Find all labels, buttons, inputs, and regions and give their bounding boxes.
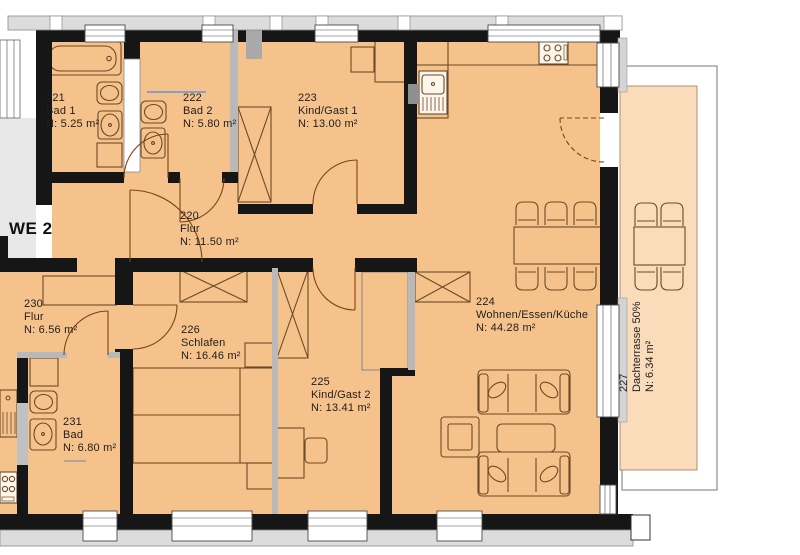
room-number: 225 [311,376,371,389]
room-label-224: 224 Wohnen/Essen/Küche N: 44.28 m² [476,296,588,335]
floor-plan: WE 2 221 Bad 1 N: 5.25 m² 222 Bad 2 N: 5… [0,0,800,555]
room-number: 230 [24,298,77,311]
room-name: Wohnen/Essen/Küche [476,309,588,322]
room-label-230: 230 Flur N: 6.56 m² [24,298,77,337]
room-number: 231 [63,416,116,429]
room-label-226: 226 Schlafen N: 16.46 m² [181,324,241,363]
room-label-220: 220 Flur N: 11.50 m² [180,210,239,249]
room-name: Flur [180,223,239,236]
room-area: N: 5.80 m² [183,118,236,131]
window-right-1 [597,43,619,87]
room-label-225: 225 Kind/Gast 2 N: 13.41 m² [311,376,371,415]
room-number: 220 [180,210,239,223]
window-top-2 [202,25,233,42]
room-name: Flur [24,311,77,324]
room-area: N: 6.34 m² [644,272,657,392]
room-number: 222 [183,92,236,105]
window-top-3 [315,25,358,42]
room-number: 226 [181,324,241,337]
room-name: Kind/Gast 2 [311,389,371,402]
window-top-1 [85,25,125,42]
duct-shaft [124,59,140,172]
window-bottom-4 [437,511,482,541]
unit-label: WE 2 [9,219,53,239]
room-name: Bad 1 [46,105,99,118]
room-label-222: 222 Bad 2 N: 5.80 m² [183,92,236,131]
room-area: N: 5.25 m² [46,118,99,131]
kitchen-duct [408,84,419,104]
room-area: N: 44.28 m² [476,322,588,335]
room-label-221: 221 Bad 1 N: 5.25 m² [46,92,99,131]
room-area: N: 13.41 m² [311,402,371,415]
room-area: N: 13.00 m² [298,118,358,131]
room-number: 224 [476,296,588,309]
room-number: 223 [298,92,358,105]
room-label-227: 227 Dachterrasse 50% N: 6.34 m² [618,272,678,392]
window-top-kitchen [488,25,600,42]
room-name: Dachterrasse 50% [631,272,644,392]
terrace-pillar [631,515,650,540]
window-left [0,40,20,118]
window-bottom-1 [83,511,117,541]
room-area: N: 11.50 m² [180,236,239,249]
room-area: N: 16.46 m² [181,350,241,363]
floor-plan-graphics [0,0,800,555]
window-bottom-3 [308,511,367,541]
room-name: Schlafen [181,337,241,350]
room-name: Kind/Gast 1 [298,105,358,118]
exterior-wall-right [600,29,618,517]
terrace-door-opening [600,113,618,167]
room-area: N: 6.56 m² [24,324,77,337]
room-number: 227 [618,272,631,392]
room-area: N: 6.80 m² [63,442,116,455]
room-name: Bad [63,429,116,442]
window-right-2 [597,305,619,417]
room-name: Bad 2 [183,105,236,118]
room-label-223: 223 Kind/Gast 1 N: 13.00 m² [298,92,358,131]
window-bottom-2 [172,511,252,541]
room-label-231: 231 Bad N: 6.80 m² [63,416,116,455]
window-right-3 [600,485,616,514]
room-number: 221 [46,92,99,105]
